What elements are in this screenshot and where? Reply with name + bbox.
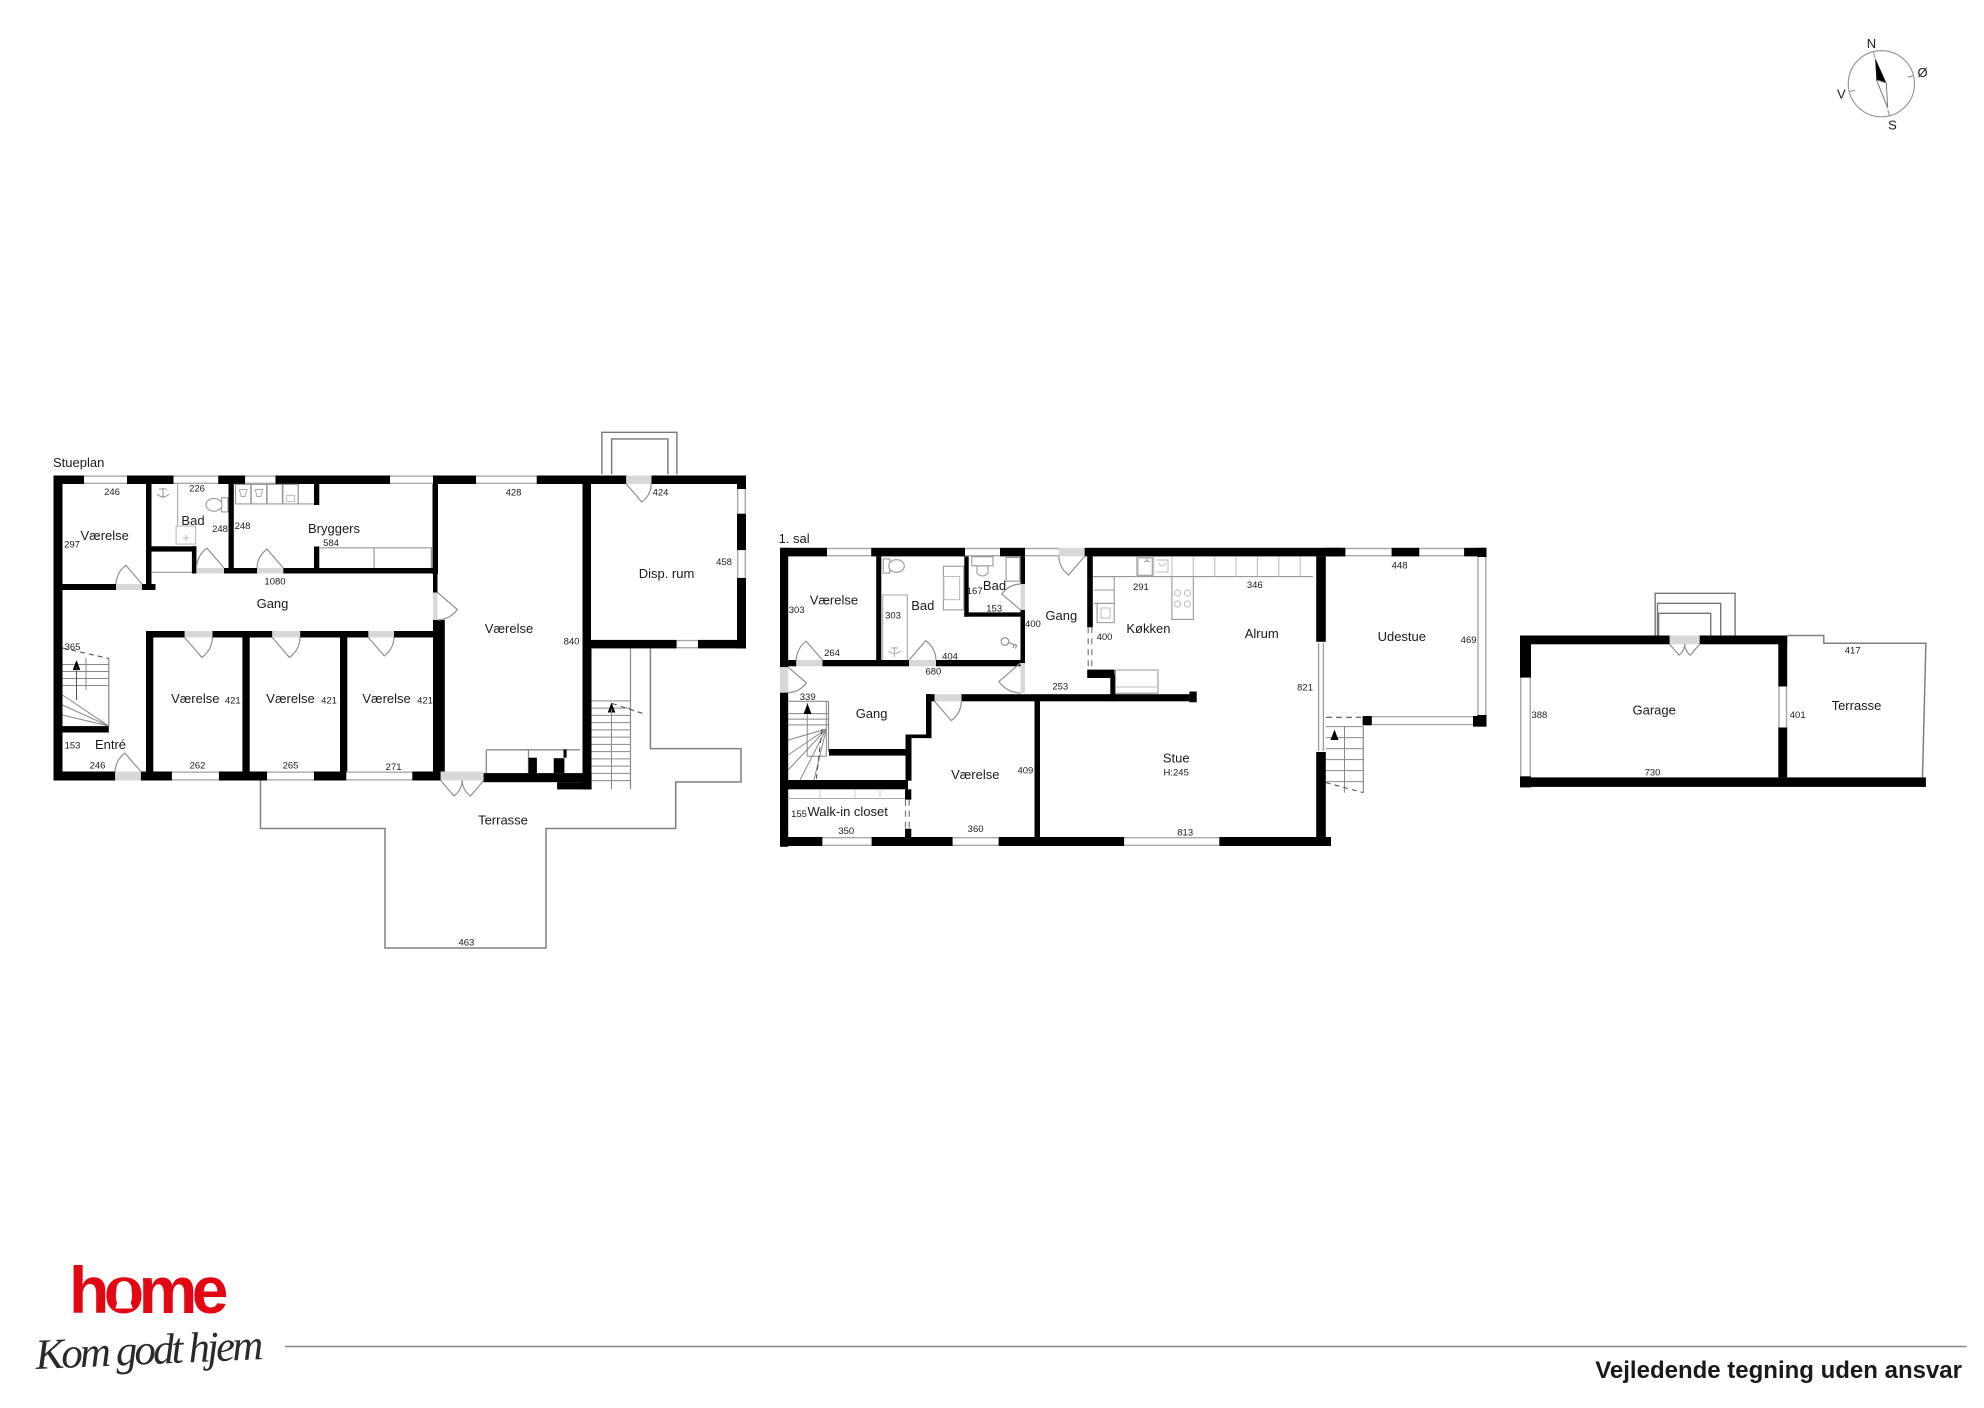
svg-text:388: 388: [1531, 710, 1547, 721]
svg-text:V: V: [1837, 87, 1846, 102]
svg-text:Værelse: Værelse: [485, 621, 533, 636]
svg-text:350: 350: [838, 826, 854, 837]
svg-text:404: 404: [942, 652, 958, 663]
svg-text:Entré: Entré: [95, 737, 126, 752]
svg-text:Bad: Bad: [983, 578, 1006, 593]
svg-text:Værelse: Værelse: [362, 691, 410, 706]
svg-text:421: 421: [417, 696, 433, 707]
svg-text:297: 297: [64, 540, 80, 551]
svg-text:Værelse: Værelse: [80, 528, 128, 543]
svg-text:253: 253: [1052, 682, 1068, 693]
svg-text:N: N: [1867, 36, 1876, 51]
svg-text:Terrasse: Terrasse: [1832, 698, 1882, 713]
svg-text:458: 458: [716, 557, 732, 568]
svg-text:424: 424: [653, 488, 669, 499]
svg-text:Disp. rum: Disp. rum: [639, 566, 695, 581]
svg-text:400: 400: [1097, 632, 1113, 643]
svg-text:Gang: Gang: [1045, 608, 1077, 623]
svg-text:Terrasse: Terrasse: [478, 813, 528, 828]
svg-text:365: 365: [65, 642, 81, 653]
svg-text:Vejledende tegning uden ansvar: Vejledende tegning uden ansvar: [1595, 1357, 1962, 1384]
svg-text:Bryggers: Bryggers: [308, 521, 361, 536]
svg-text:264: 264: [824, 648, 840, 659]
svg-text:Værelse: Værelse: [951, 767, 999, 782]
svg-text:291: 291: [1133, 582, 1149, 593]
svg-text:463: 463: [458, 938, 474, 949]
svg-text:Alrum: Alrum: [1245, 626, 1279, 641]
svg-text:1080: 1080: [264, 577, 285, 588]
svg-text:271: 271: [386, 762, 402, 773]
svg-text:421: 421: [321, 696, 337, 707]
svg-text:Gang: Gang: [257, 596, 289, 611]
svg-text:246: 246: [90, 761, 106, 772]
svg-text:813: 813: [1177, 828, 1193, 839]
svg-text:Bad: Bad: [911, 598, 934, 613]
svg-text:248: 248: [235, 521, 251, 532]
svg-text:155: 155: [791, 809, 807, 820]
svg-text:153: 153: [986, 604, 1002, 615]
svg-text:226: 226: [189, 484, 205, 495]
svg-text:H:245: H:245: [1164, 768, 1189, 779]
svg-text:1. sal: 1. sal: [779, 531, 810, 546]
svg-text:Ø: Ø: [1917, 65, 1927, 80]
svg-text:265: 265: [283, 761, 299, 772]
svg-text:680: 680: [925, 667, 941, 678]
svg-text:Walk-in closet: Walk-in closet: [807, 804, 888, 819]
svg-text:Værelse: Værelse: [266, 691, 314, 706]
svg-text:Stue: Stue: [1163, 751, 1190, 766]
svg-text:153: 153: [65, 741, 81, 752]
svg-text:Stueplan: Stueplan: [53, 455, 104, 470]
svg-text:469: 469: [1461, 635, 1477, 646]
svg-text:Gang: Gang: [856, 706, 888, 721]
svg-text:401: 401: [1790, 710, 1806, 721]
svg-text:167: 167: [967, 586, 983, 597]
svg-text:Værelse: Værelse: [810, 593, 858, 608]
svg-text:400: 400: [1025, 619, 1041, 630]
svg-text:Udestue: Udestue: [1378, 629, 1426, 644]
svg-text:home: home: [69, 1253, 227, 1327]
svg-text:821: 821: [1297, 683, 1313, 694]
svg-text:248: 248: [212, 524, 228, 535]
svg-text:Kom godt hjem: Kom godt hjem: [33, 1322, 264, 1379]
svg-text:421: 421: [225, 696, 241, 707]
svg-text:448: 448: [1392, 561, 1408, 572]
svg-text:360: 360: [968, 824, 984, 835]
svg-text:262: 262: [190, 761, 206, 772]
svg-text:Køkken: Køkken: [1126, 621, 1170, 636]
svg-text:428: 428: [506, 488, 522, 499]
svg-text:409: 409: [1017, 766, 1033, 777]
svg-text:303: 303: [885, 611, 901, 622]
svg-text:303: 303: [789, 605, 805, 616]
svg-text:246: 246: [104, 487, 120, 498]
svg-text:346: 346: [1247, 580, 1263, 591]
svg-text:Garage: Garage: [1633, 703, 1676, 718]
svg-text:840: 840: [564, 637, 580, 648]
svg-text:730: 730: [1645, 768, 1661, 779]
svg-text:417: 417: [1845, 646, 1861, 657]
svg-text:S: S: [1888, 118, 1897, 133]
svg-text:Værelse: Værelse: [171, 691, 219, 706]
